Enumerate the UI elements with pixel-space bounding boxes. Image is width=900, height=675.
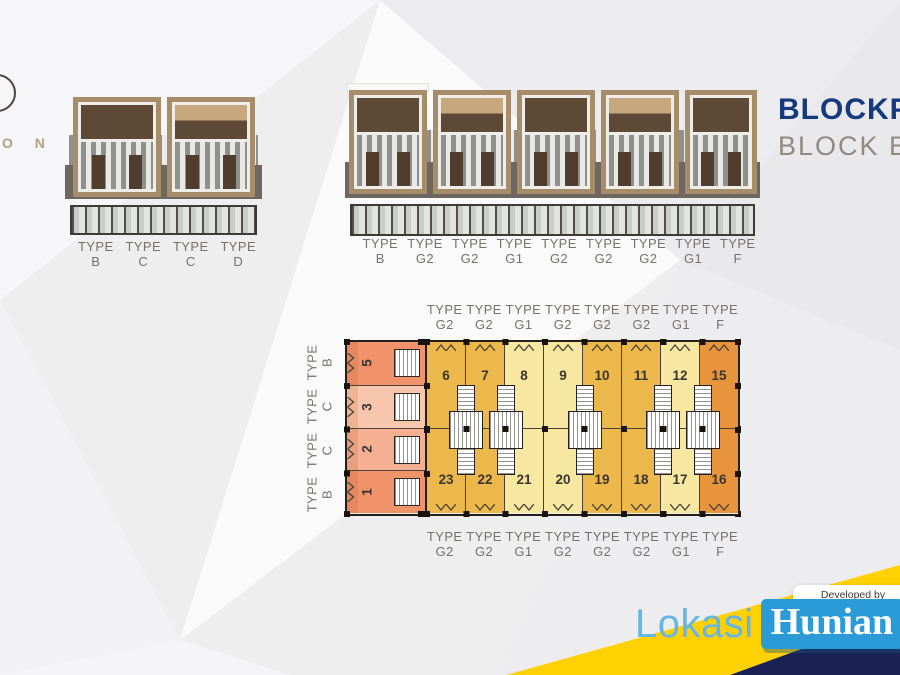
type-label: TYPEG2 — [583, 303, 622, 332]
type-label: TYPED — [215, 240, 263, 269]
door-swing-icon — [553, 504, 573, 511]
door-swing-icon — [709, 504, 729, 511]
facade-module — [167, 97, 255, 197]
facade-windows — [357, 135, 419, 186]
floor-plan-main-block: 6 7 8 9 10 11 — [425, 340, 740, 516]
column-posts — [424, 339, 430, 517]
brand-partial-name: O N — [2, 135, 54, 151]
stair-core-icon — [394, 478, 420, 506]
hunian-badge: Hunian — [761, 599, 900, 649]
type-label: TYPEG2 — [583, 530, 622, 559]
door-swing-icon — [670, 504, 690, 511]
facade-module — [601, 90, 679, 194]
elevation-right-type-labels: TYPEB TYPEG2 TYPEG2 TYPEG1 TYPEG2 TYPEG2… — [358, 237, 760, 266]
facade-windows — [441, 135, 503, 186]
column-posts — [424, 511, 741, 517]
stair-core-icon — [394, 436, 420, 464]
plan-side-type-label: TYPEC — [300, 384, 340, 428]
unit-number: 6 — [427, 368, 465, 383]
door-swing-icon — [514, 344, 534, 351]
elevation-right-rendering — [345, 88, 760, 236]
type-label: TYPEG2 — [622, 303, 661, 332]
unit-number: 10 — [583, 368, 621, 383]
facade-module — [517, 90, 595, 194]
unit-cell: 1 — [347, 470, 425, 513]
column-posts — [344, 339, 350, 517]
door-swing-icon — [709, 344, 729, 351]
facade-module — [685, 90, 757, 194]
door-swing-icon — [592, 344, 612, 351]
column-posts — [344, 339, 428, 345]
unit-number: 5 — [359, 360, 374, 368]
unit-number: 11 — [622, 368, 660, 383]
facade-roof — [609, 98, 671, 132]
stair-core-icon — [394, 349, 420, 377]
door-swing-icon — [553, 344, 573, 351]
floor-plan-left-block: 5 3 2 1 — [345, 340, 425, 516]
type-label: TYPEC — [120, 240, 168, 269]
unit-cell: 5 — [347, 342, 425, 385]
slide: O N BLOCKPLAN BLOCK B — [0, 0, 900, 675]
door-swing-icon — [631, 344, 651, 351]
type-label: TYPEG2 — [537, 237, 582, 266]
type-label: TYPEG2 — [425, 303, 464, 332]
facade-glazing — [70, 205, 257, 235]
elevation-left-type-labels: TYPEB TYPEC TYPEC TYPED — [72, 240, 262, 269]
lokasi-hunian-logo: Lokasi Hunian — [635, 598, 900, 650]
unit-cell: 3 — [347, 385, 425, 428]
type-label: TYPEG2 — [543, 530, 582, 559]
type-label: TYPEF — [701, 530, 740, 559]
type-label: TYPEF — [715, 237, 760, 266]
type-label: TYPEG1 — [492, 237, 537, 266]
column-posts — [424, 339, 741, 345]
facade-glazing — [350, 204, 755, 236]
type-label: TYPEG2 — [447, 237, 492, 266]
facade-windows — [525, 135, 587, 186]
type-label: TYPEG2 — [626, 237, 671, 266]
column-posts — [735, 339, 741, 517]
facade-windows — [609, 135, 671, 186]
type-label: TYPEG2 — [425, 530, 464, 559]
type-label: TYPEG2 — [464, 303, 503, 332]
facade-roof — [81, 105, 153, 139]
type-label: TYPEG1 — [661, 530, 700, 559]
lokasi-wordmark: Lokasi — [635, 602, 754, 647]
door-swing-icon — [631, 504, 651, 511]
type-label: TYPEG2 — [464, 530, 503, 559]
column-posts — [344, 511, 428, 517]
facade-roof — [441, 98, 503, 132]
door-swing-icon — [670, 344, 690, 351]
plan-side-type-label: TYPEB — [300, 472, 340, 516]
hunian-wordmark: Hunian — [771, 601, 894, 643]
column-posts — [424, 426, 741, 432]
door-swing-icon — [592, 504, 612, 511]
door-swing-icon — [436, 504, 456, 511]
type-label: TYPEB — [72, 240, 120, 269]
facade-windows — [175, 142, 247, 189]
facade-module — [433, 90, 511, 194]
door-swing-icon — [475, 344, 495, 351]
facade-roof — [175, 105, 247, 139]
type-label: TYPEG2 — [543, 303, 582, 332]
plan-top-type-labels: TYPEG2 TYPEG2 TYPEG1 TYPEG2 TYPEG2 TYPEG… — [425, 303, 740, 332]
unit-number: 3 — [359, 403, 374, 411]
unit-number: 15 — [700, 368, 738, 383]
plan-side-type-label: TYPEC — [300, 428, 340, 472]
facade-roof — [693, 98, 749, 132]
type-label: TYPEG2 — [403, 237, 448, 266]
unit-cell: 2 — [347, 428, 425, 471]
type-label: TYPEF — [701, 303, 740, 332]
stair-core-icon — [394, 393, 420, 421]
page-title: BLOCKPLAN — [778, 93, 900, 127]
type-label: TYPEG1 — [661, 303, 700, 332]
type-label: TYPEG1 — [504, 303, 543, 332]
facade-roof — [525, 98, 587, 132]
door-swing-icon — [514, 504, 534, 511]
unit-number: 12 — [661, 368, 699, 383]
facade-windows — [81, 142, 153, 189]
facade-module — [349, 90, 427, 194]
plan-side-type-label: TYPEB — [300, 340, 340, 384]
facade-module — [73, 97, 161, 197]
type-label: TYPEB — [358, 237, 403, 266]
unit-number: 8 — [505, 368, 543, 383]
type-label: TYPEG2 — [581, 237, 626, 266]
plan-bottom-type-labels: TYPEG2 TYPEG2 TYPEG1 TYPEG2 TYPEG2 TYPEG… — [425, 530, 740, 559]
type-label: TYPEG1 — [504, 530, 543, 559]
unit-number: 7 — [466, 368, 504, 383]
facade-roof — [357, 98, 419, 132]
unit-number: 9 — [544, 368, 582, 383]
elevation-left-rendering — [65, 95, 262, 235]
door-swing-icon — [475, 504, 495, 511]
unit-number: 1 — [359, 488, 374, 496]
type-label: TYPEG2 — [622, 530, 661, 559]
type-label: TYPEC — [167, 240, 215, 269]
type-label: TYPEG1 — [671, 237, 716, 266]
page-subtitle: BLOCK B — [778, 131, 900, 162]
unit-number: 2 — [359, 446, 374, 454]
facade-windows — [693, 135, 749, 186]
door-swing-icon — [436, 344, 456, 351]
